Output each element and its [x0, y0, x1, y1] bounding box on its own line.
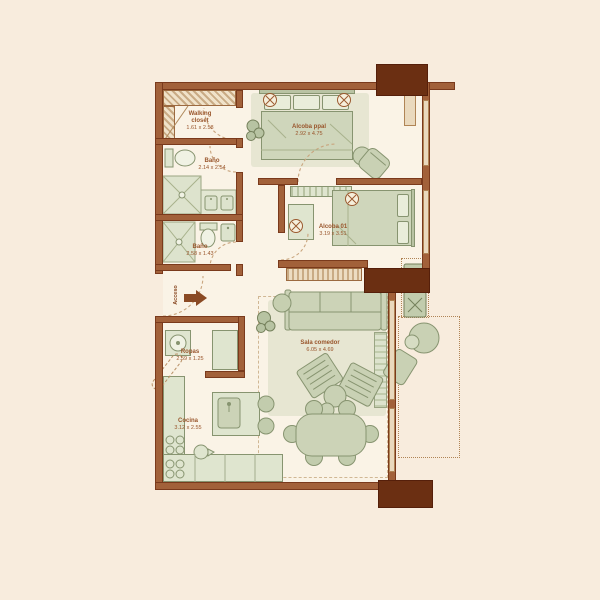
island-sink: [218, 398, 240, 428]
bar-stool: [258, 396, 274, 412]
column-middle: [364, 268, 430, 293]
wall-left-lower: [155, 316, 163, 490]
wall-bath-right-b: [236, 138, 243, 148]
wall-ppal-left: [258, 178, 298, 185]
wall-alcoba01-left: [278, 185, 285, 233]
wall-bano1-bano2: [155, 214, 243, 221]
wall-left-upper: [155, 82, 163, 274]
wall-bano2-entry: [155, 264, 231, 271]
floor-plan-canvas: Acceso Walking closet 1.61 x 2.58 Baño 2…: [0, 0, 600, 600]
wall-entry-ropas: [155, 316, 240, 323]
side-table: [273, 294, 291, 312]
wall-ropas-bottom: [205, 371, 245, 378]
ceiling-light-marker: [290, 220, 303, 233]
room-label-ropas: Ropas 2.59 x 1.25: [160, 349, 220, 363]
room-label-cocina: Cocina 3.12 x 2.55: [158, 418, 218, 432]
shower-1: [163, 176, 201, 214]
window-sala-2: [389, 408, 395, 472]
stove-burners: [166, 436, 184, 478]
window-alcoba-ppal: [423, 100, 429, 166]
wall-closet-bano1: [155, 138, 237, 145]
ceiling-light-marker: [346, 193, 359, 206]
column-bottom: [378, 480, 433, 508]
wall-bath-right-d: [236, 264, 243, 276]
vanity-1: [201, 190, 236, 216]
wall-closet-right-a: [236, 90, 243, 108]
kettle-icon: [194, 445, 214, 459]
column-top: [376, 64, 428, 96]
armchair-alcoba-ppal: [353, 146, 392, 181]
window-sala-1: [389, 300, 395, 400]
sofa: [285, 290, 387, 330]
room-label-sala-comedor: Sala comedor 6.05 x 4.69: [285, 340, 355, 354]
plant-alcoba-ppal: [247, 120, 265, 141]
wall-bath-right-c: [236, 172, 243, 242]
dining-table: [296, 414, 366, 456]
window-alcoba-01: [423, 190, 429, 254]
room-label-bano-2: Baño 2.58 x 1.43: [170, 244, 230, 258]
planter-box: [404, 292, 426, 317]
room-label-walking-closet: Walking closet 1.61 x 2.58: [170, 111, 230, 132]
room-label-bano-1: Baño 2.14 x 2.54: [182, 158, 242, 172]
wall-alcoba01-bottom: [278, 260, 368, 268]
bar-stool: [258, 418, 274, 434]
sink-2-icon: [221, 224, 235, 241]
entrance-label: Acceso: [173, 277, 179, 313]
wall-ppal-right: [336, 178, 422, 185]
plan-detail-layer: [0, 0, 600, 600]
ceiling-light-marker: [338, 94, 351, 107]
plant-sala: [257, 312, 276, 333]
ceiling-light-marker: [264, 94, 277, 107]
room-label-alcoba-01: Alcoba 01 3.19 x 3.51: [303, 224, 363, 238]
wall-ropas-right: [238, 316, 245, 371]
room-label-alcoba-ppal: Alcoba ppal 2.92 x 4.75: [279, 124, 339, 138]
